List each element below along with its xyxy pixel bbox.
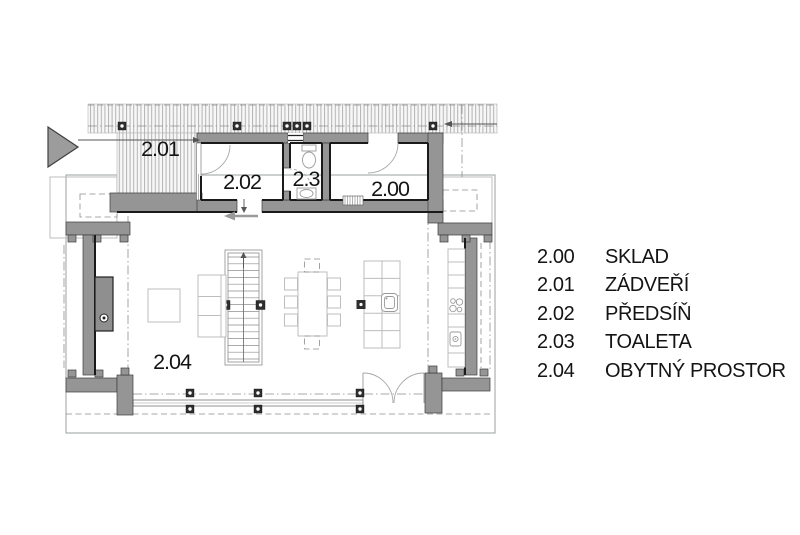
room-label-obytny-prostor: 2.04: [153, 350, 192, 374]
toilet: [302, 145, 316, 168]
legend-name: PŘEDSÍŇ: [605, 303, 691, 326]
legend-row: 2.00 SKLAD: [537, 246, 786, 274]
counter-sink: [450, 332, 461, 346]
legend-row: 2.04 OBYTNÝ PROSTOR: [537, 360, 786, 388]
staircase: [221, 250, 265, 365]
legend-number: 2.01: [537, 274, 605, 297]
legend-number: 2.04: [537, 360, 605, 383]
coffee-table: [148, 289, 180, 322]
page: 2.01 2.02 2.3 2.00 2.04 2.00 SKLAD 2.01 …: [0, 0, 800, 535]
kitchen-island: [357, 261, 401, 348]
kitchen-counter: [448, 249, 465, 367]
dining-table: [285, 259, 341, 349]
legend-name: SKLAD: [605, 246, 669, 269]
legend-name: ZÁDVEŘÍ: [605, 274, 689, 297]
window-band: [133, 400, 363, 406]
radiator: [343, 196, 363, 205]
legend-row: 2.02 PŘEDSÍŇ: [537, 303, 786, 331]
fireplace: [95, 277, 113, 331]
toilet-window: [288, 133, 303, 143]
legend-row: 2.03 TOALETA: [537, 331, 786, 359]
legend-name: OBYTNÝ PROSTOR: [605, 360, 786, 383]
legend-name: TOALETA: [605, 331, 692, 354]
room-label-toaleta: 2.3: [293, 167, 321, 191]
legend-number: 2.02: [537, 303, 605, 326]
legend-number: 2.00: [537, 246, 605, 269]
legend-row: 2.01 ZÁDVEŘÍ: [537, 274, 786, 302]
room-label-predsin: 2.02: [223, 170, 261, 194]
sofa: [198, 275, 226, 337]
room-label-sklad: 2.00: [371, 177, 410, 201]
room-legend: 2.00 SKLAD 2.01 ZÁDVEŘÍ 2.02 PŘEDSÍŇ 2.0…: [537, 246, 786, 388]
legend-number: 2.03: [537, 331, 605, 354]
room-label-zadveri: 2.01: [141, 137, 179, 161]
